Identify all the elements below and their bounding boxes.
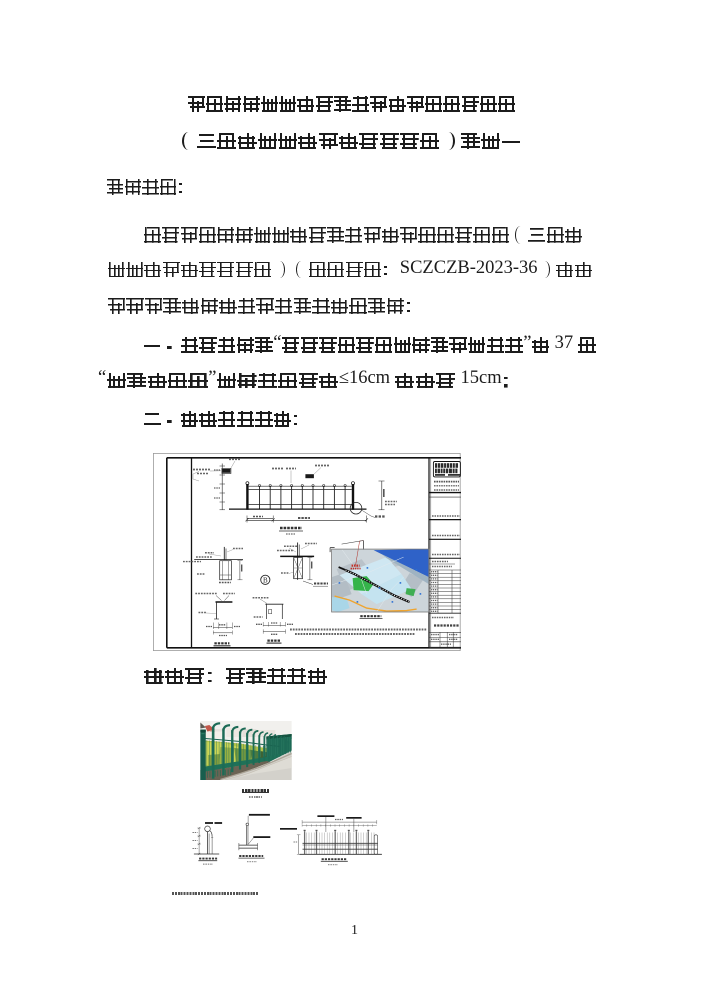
svg-text:B: B [263,576,268,584]
